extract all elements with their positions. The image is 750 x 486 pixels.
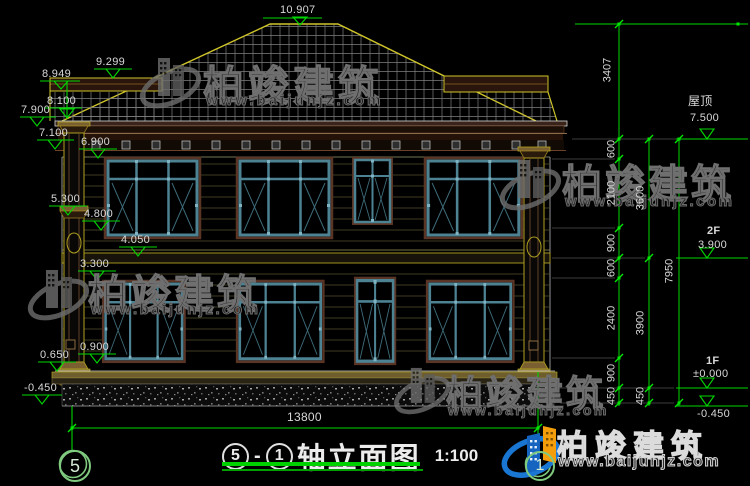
below-grade-value: -0.450 (697, 409, 730, 420)
level-label-6900: 6.900 (81, 137, 110, 148)
dim-3900: 3900 (636, 311, 647, 335)
level-label-8949: 8.949 (42, 69, 71, 80)
level-label-8100: 8.100 (47, 96, 76, 107)
level-label-5300: 5.300 (51, 194, 80, 205)
windows-second-floor (105, 158, 522, 238)
eave-cornice (55, 121, 567, 157)
dim-600a: 600 (607, 140, 618, 158)
watermark-url-bottom: www.baijunjz.com (448, 402, 609, 418)
axis-bubble-1-digit: 1 (536, 457, 545, 475)
level-label-4050: 4.050 (121, 235, 150, 246)
level-label-neg0450: -0.450 (24, 383, 57, 394)
brand-logo-url: www.baijunjz.com (558, 453, 720, 471)
floor1-value: ±0.000 (693, 369, 728, 380)
dim-2100: 2100 (607, 181, 618, 205)
level-label-9299: 9.299 (96, 57, 125, 68)
dim-13800: 13800 (287, 412, 322, 423)
level-label-10907: 10.907 (280, 5, 315, 16)
floor2-value: 3.900 (698, 240, 727, 251)
watermark-url-top: www.baijunjz.com (206, 92, 383, 109)
axis-bubble-5-digit: 5 (70, 456, 80, 477)
cad-elevation-canvas: 柏竣建筑 www.baijunjz.com 柏竣建筑 www.baijunjz.… (0, 0, 750, 486)
level-label-0650: 0.650 (40, 350, 69, 361)
floor1-label: 1F (706, 356, 719, 367)
floor2-label: 2F (707, 226, 720, 237)
dim-3407: 3407 (603, 58, 614, 82)
axis-bubble-1: 1 (525, 451, 555, 481)
level-label-4800: 4.800 (84, 209, 113, 220)
axis-bubble-5: 5 (59, 450, 91, 482)
dim-3600: 3600 (636, 186, 647, 210)
title-scale: 1:100 (435, 446, 478, 466)
level-label-7100: 7.100 (39, 128, 68, 139)
dim-450b: 450 (636, 387, 647, 405)
level-label-3300: 3.300 (80, 259, 109, 270)
dim-600b: 600 (607, 259, 618, 277)
dim-900a: 900 (607, 234, 618, 252)
title-underline-thin (222, 469, 423, 471)
level-label-0900: 0.900 (80, 342, 109, 353)
level-label-7900: 7.900 (21, 105, 50, 116)
title-underline-thick (222, 462, 420, 466)
roof-level-label: 屋顶 (688, 96, 713, 107)
watermark-url-right: www.baijunjz.com (565, 193, 734, 210)
dim-7950: 7950 (665, 259, 676, 283)
dim-900b: 900 (607, 364, 618, 382)
dim-450a: 450 (607, 387, 618, 405)
roof-level-value: 7.500 (690, 113, 719, 124)
watermark-url-left: www.baijunjz.com (91, 301, 260, 318)
dim-2400: 2400 (607, 306, 618, 330)
